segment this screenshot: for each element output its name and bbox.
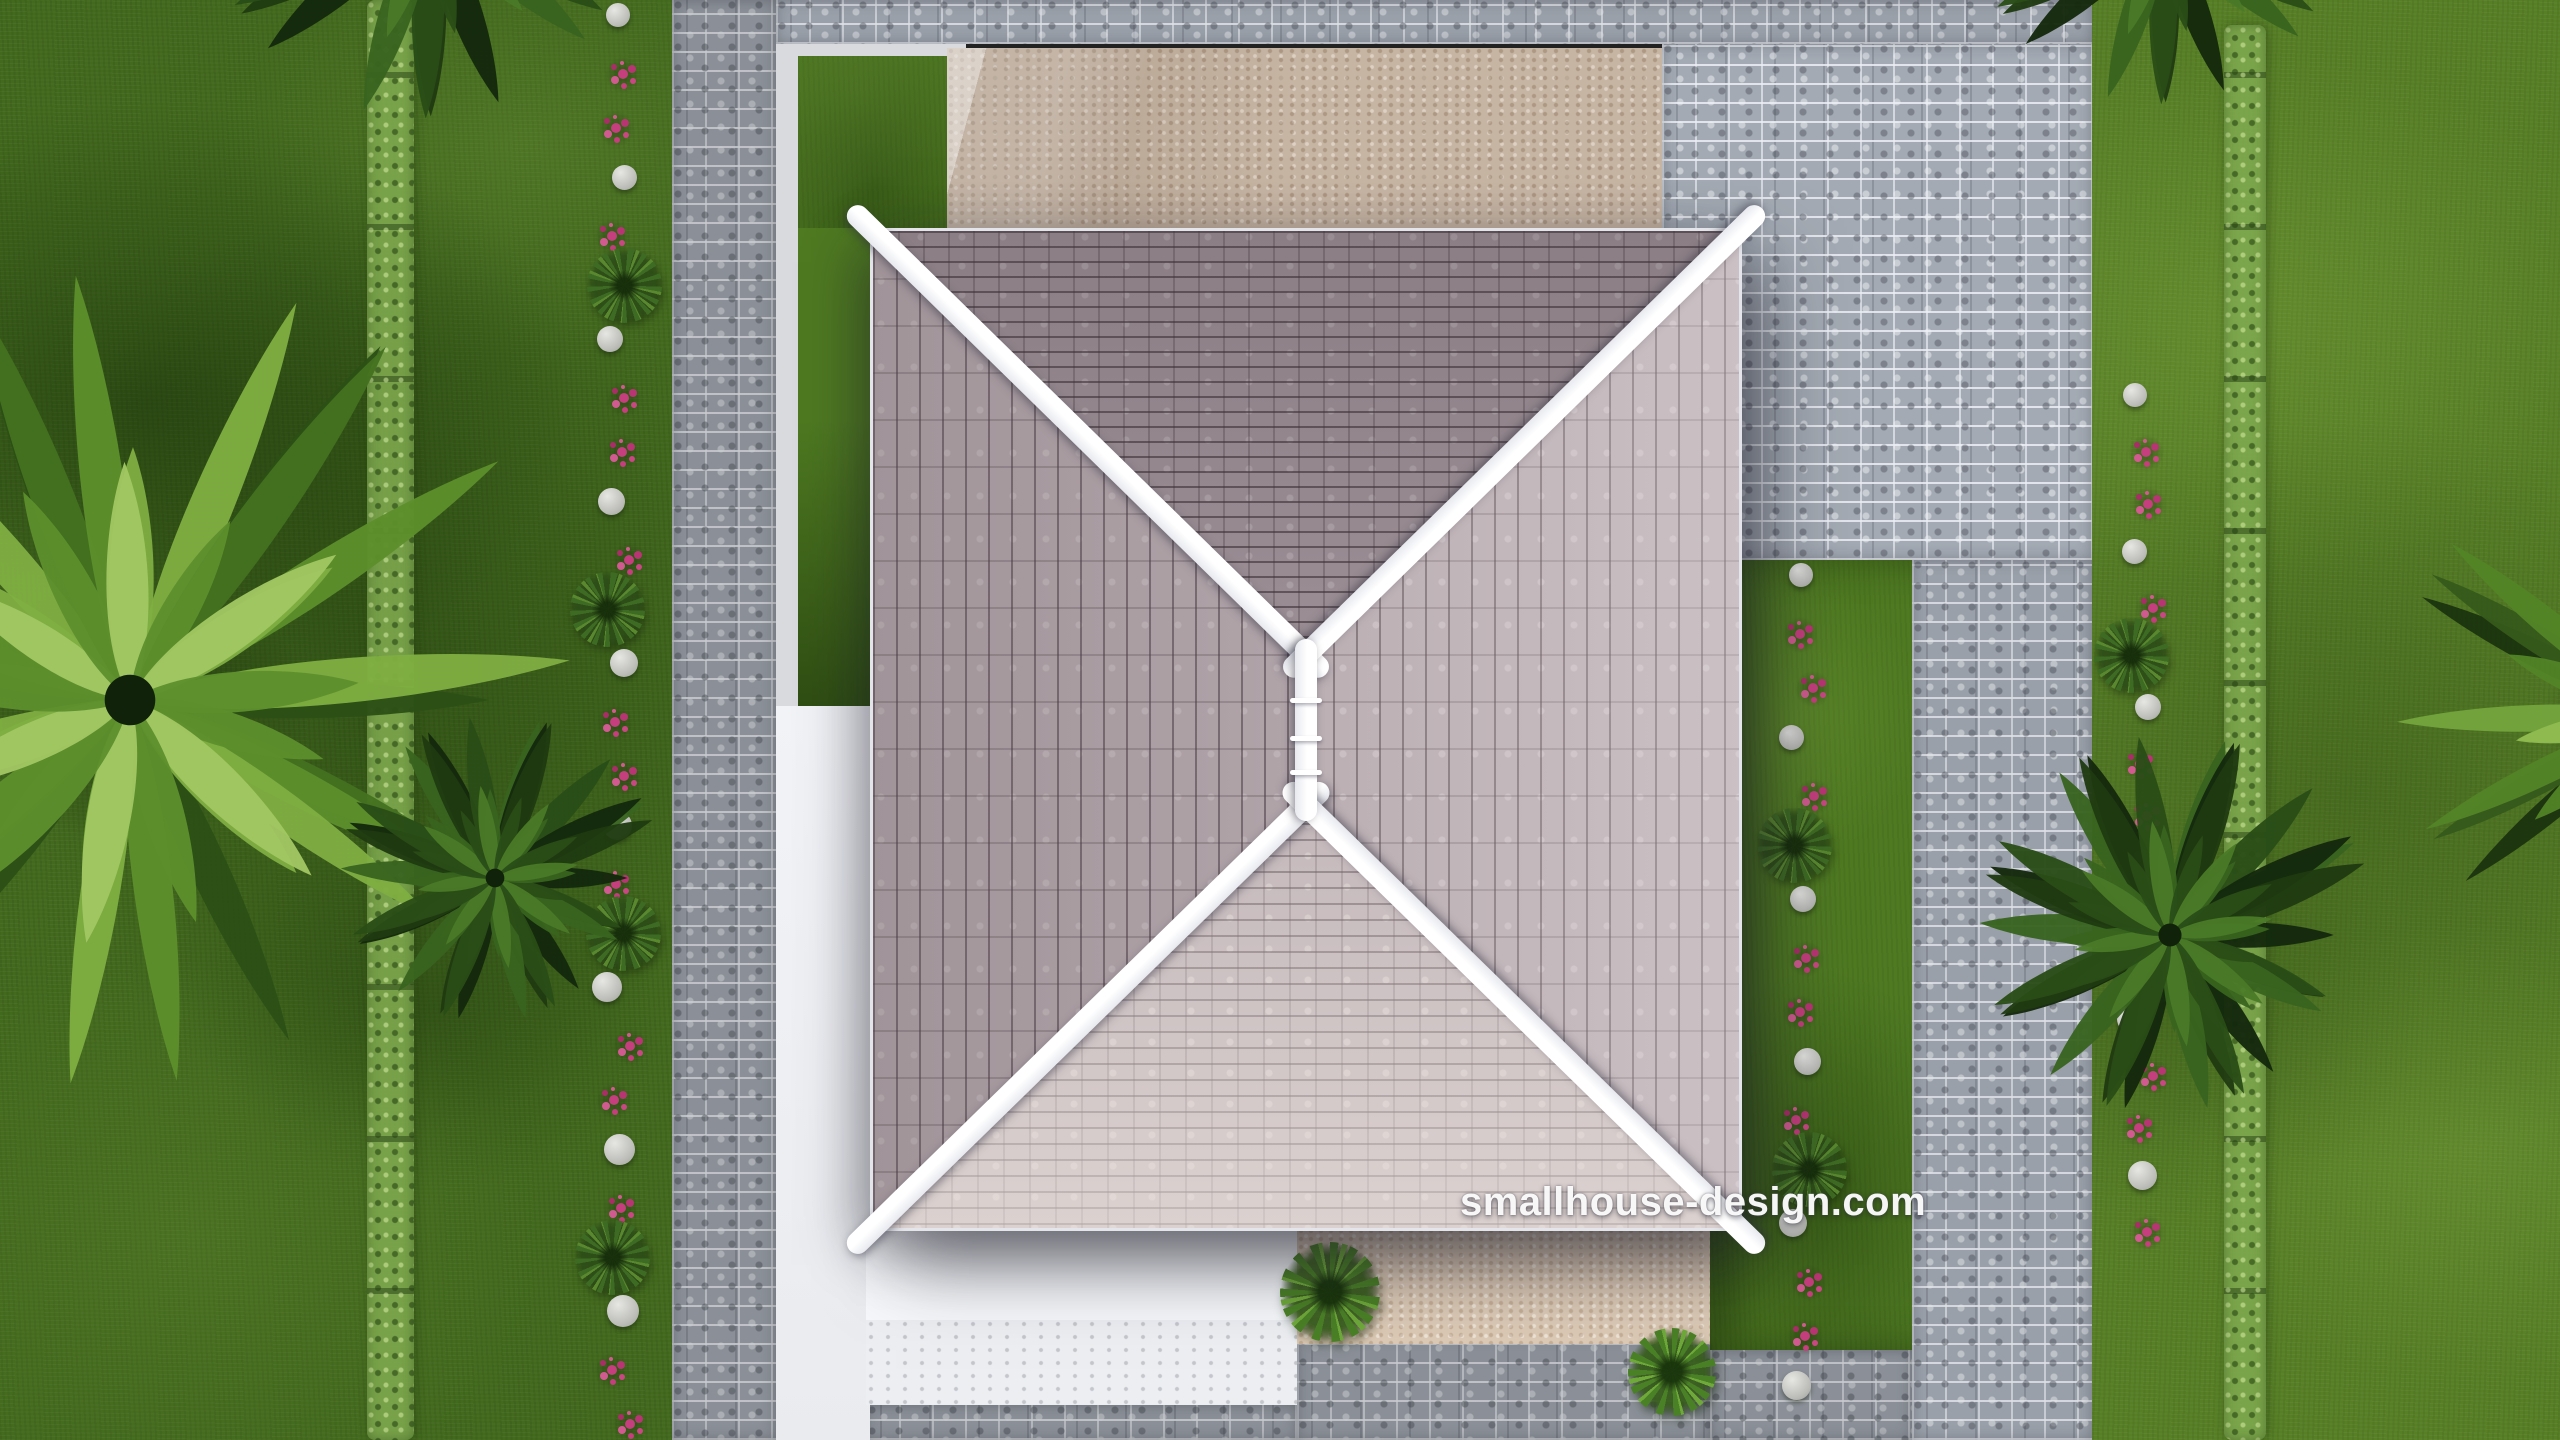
cobble-band-bottom-left [866, 1405, 1297, 1440]
white-strip-left [776, 706, 870, 1440]
yard-lawn-right [1710, 560, 1930, 1350]
cobble-walkway-right [1912, 560, 2092, 1440]
right-lawn [2092, 0, 2560, 1440]
aerial-house-render: smallhouse-design.com [0, 0, 2560, 1440]
cobble-band-bottom-center [1297, 1336, 1710, 1440]
watermark-text: smallhouse-design.com [1460, 1180, 1940, 1225]
front-concrete-pad [947, 48, 1662, 228]
cobble-band-top [776, 0, 2092, 44]
cobble-band-left [672, 0, 776, 1440]
cobble-band-bottom-right [1710, 1350, 1912, 1440]
yard-lawn-left [798, 228, 870, 706]
hipped-roof [870, 228, 1742, 1231]
curb-top [776, 44, 966, 56]
curb-left [776, 56, 798, 706]
yard-lawn-top [798, 56, 947, 228]
back-walkway [1297, 1228, 1710, 1344]
left-lawn [0, 0, 672, 1440]
white-patio [866, 1228, 1297, 1405]
